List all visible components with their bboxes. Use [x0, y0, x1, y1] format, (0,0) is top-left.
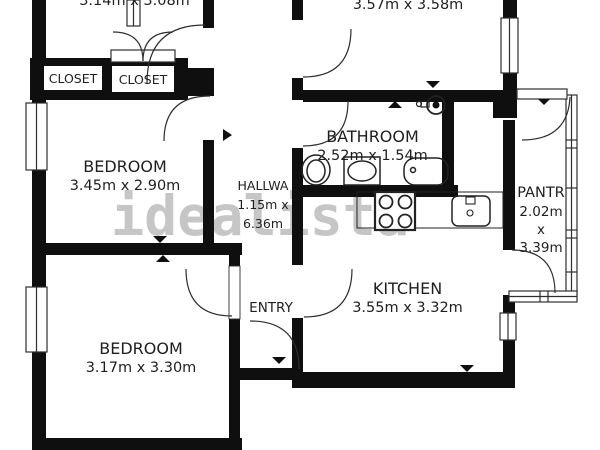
- pantry-dims-1: 2.02m: [507, 203, 575, 221]
- window-bedroom-bottom-left: [26, 287, 47, 352]
- bedroom-middle-dims: 3.45m x 2.90m: [50, 177, 200, 196]
- door-leaf-bedroom-bottom: [229, 266, 240, 319]
- hallway-name: HALLWA: [234, 176, 292, 195]
- kitchen-dims: 3.55m x 3.32m: [335, 299, 480, 318]
- kitchen-name: KITCHEN: [335, 278, 480, 299]
- room-label-entry: ENTRY: [242, 300, 300, 316]
- marker-triangle: [223, 129, 232, 141]
- door-arc-bedroom-middle: [164, 96, 210, 141]
- door-arc-bedroom-bottom: [186, 269, 232, 316]
- room-label-hallway: HALLWA 1.15m x 6.36m: [234, 176, 292, 233]
- window-pantry-bottom: [509, 291, 577, 302]
- room-label-top-left-dims: 3.14m x 3.08m: [62, 0, 207, 11]
- floorplan: idealista: [0, 0, 600, 450]
- room-label-top-right-dims: 3.57m x 3.58m: [338, 0, 478, 15]
- bathroom-dims: 2.52m x 1.54m: [305, 147, 440, 166]
- room-label-bathroom: BATHROOM 2.52m x 1.54m: [305, 126, 440, 166]
- pantry-name: PANTR: [507, 184, 575, 203]
- pantry-dims-3: 3.39m: [507, 239, 575, 257]
- bedroom-bottom-dims: 3.17m x 3.30m: [62, 359, 220, 378]
- bedroom-bottom-name: BEDROOM: [62, 338, 220, 359]
- door-leaf-pantry-top: [517, 89, 567, 99]
- hallway-dims-1: 1.15m x: [234, 195, 292, 214]
- room-label-bedroom-bottom: BEDROOM 3.17m x 3.30m: [62, 338, 220, 378]
- hallway-dims-2: 6.36m: [234, 214, 292, 233]
- window-bedroom-middle-left: [26, 103, 47, 170]
- marker-triangle: [272, 357, 286, 364]
- bathroom-name: BATHROOM: [305, 126, 440, 147]
- window-kitchen-right: [500, 313, 516, 340]
- door-arc-pantry-top: [522, 97, 570, 140]
- window-bedroom-top-right: [501, 18, 518, 73]
- pantry-dims-2: x: [507, 221, 575, 239]
- room-label-kitchen: KITCHEN 3.55m x 3.32m: [335, 278, 480, 318]
- kitchen-sink-icon: [452, 196, 490, 226]
- room-label-closet-left: CLOSET: [44, 69, 102, 88]
- room-label-bedroom-middle: BEDROOM 3.45m x 2.90m: [50, 156, 200, 196]
- door-arc-bedroom-top-right: [303, 29, 351, 77]
- marker-triangle: [388, 101, 402, 108]
- marker-triangle: [156, 255, 170, 262]
- marker-triangle: [538, 99, 550, 105]
- room-label-pantry: PANTR 2.02m x 3.39m: [507, 184, 575, 257]
- marker-triangle: [426, 81, 440, 88]
- marker-triangle: [153, 236, 167, 243]
- room-label-closet-right: CLOSET: [112, 70, 174, 89]
- stove-icon: [375, 192, 415, 230]
- marker-triangle: [460, 365, 474, 372]
- bedroom-middle-name: BEDROOM: [50, 156, 200, 177]
- door-arc-entry: [250, 321, 299, 369]
